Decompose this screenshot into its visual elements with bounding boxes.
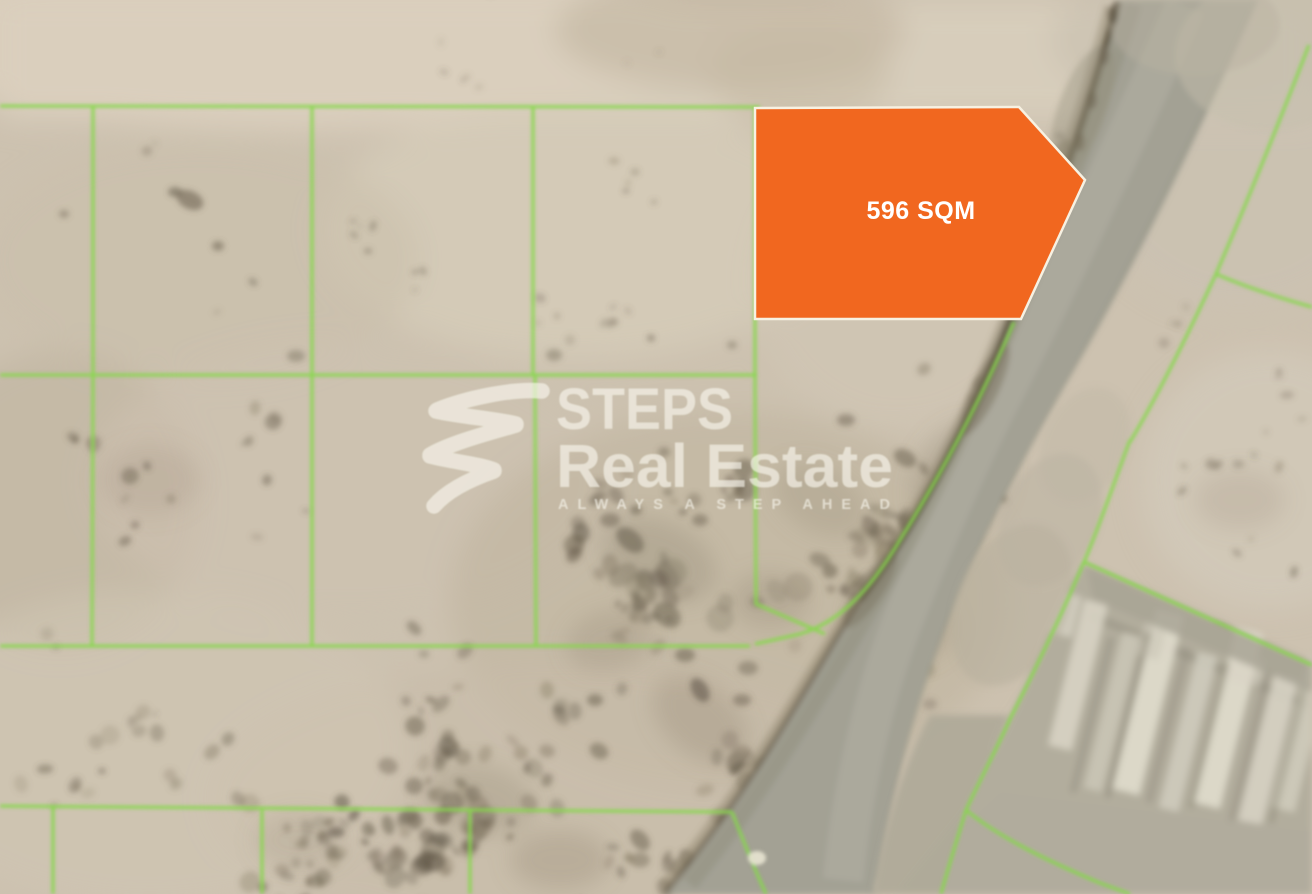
svg-text:Real Estate: Real Estate (556, 432, 893, 500)
svg-text:596 SQM: 596 SQM (866, 197, 975, 225)
